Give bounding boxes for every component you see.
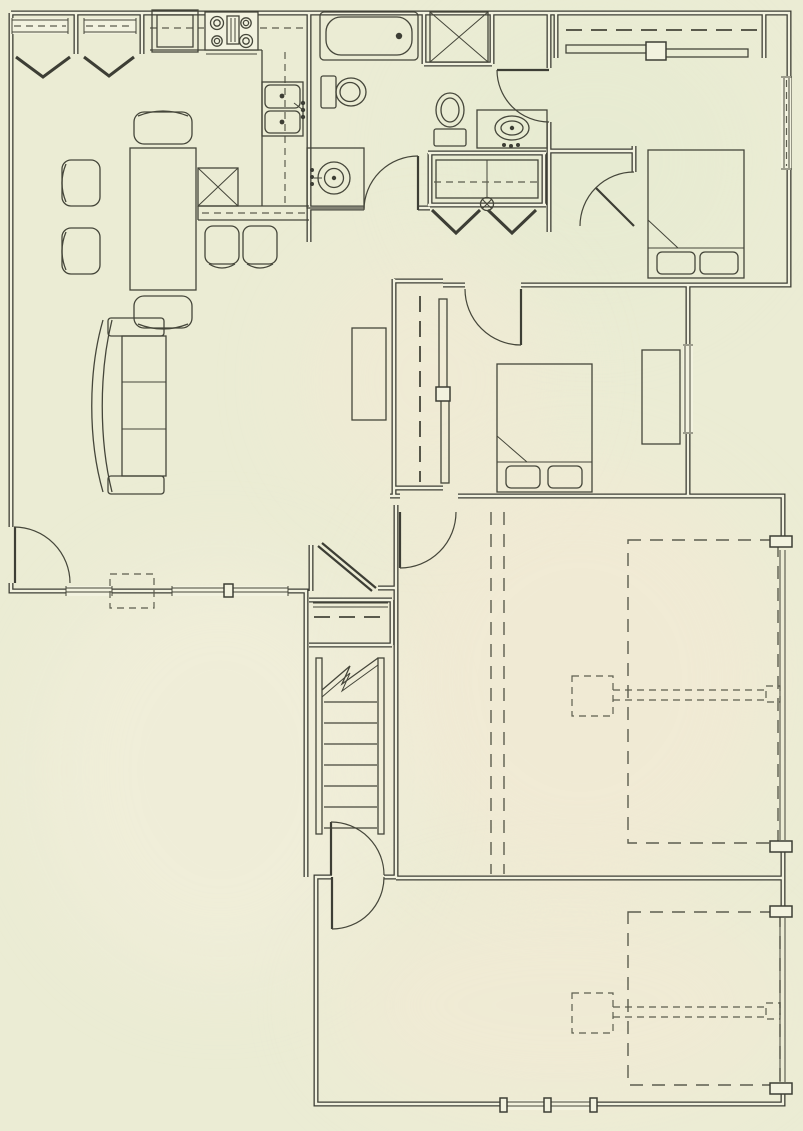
pillow	[700, 252, 738, 274]
dining-armchair	[62, 160, 100, 206]
doors-layer	[14, 70, 634, 929]
closet-door-track	[313, 603, 388, 607]
floor-plan-drawing	[0, 0, 803, 1131]
hall-angled-door	[318, 543, 376, 591]
pillow	[657, 252, 695, 274]
garage-group	[491, 512, 792, 1094]
sofa-arm	[108, 476, 164, 494]
window-bedroom1	[781, 76, 792, 170]
garage-door-opener	[572, 676, 613, 716]
opener-rail-end	[766, 1003, 780, 1019]
bath2-door	[497, 70, 549, 122]
casement-leaves	[16, 57, 70, 77]
dining-armchair	[62, 228, 100, 274]
casement-leaves	[84, 57, 134, 76]
stair-treads	[324, 702, 377, 828]
sofa-arm	[108, 318, 164, 336]
window-mullion	[544, 1098, 551, 1112]
dining-armchair	[134, 111, 192, 144]
windows-layer	[12, 18, 792, 1112]
stair-stringer	[316, 658, 322, 834]
floor-plan-sheet	[0, 0, 803, 1131]
bathroom2-group	[430, 12, 547, 211]
bath1-door	[364, 156, 418, 210]
bifold-doors	[488, 210, 536, 233]
counter-edge	[150, 50, 262, 206]
break-line	[322, 665, 378, 697]
window-bedroom2	[683, 344, 693, 434]
dining-table	[130, 148, 196, 290]
bedroom1-door	[580, 172, 634, 226]
bay-window	[84, 18, 136, 76]
bathroom1-group	[307, 12, 418, 208]
bar-stool	[205, 226, 239, 268]
curved-sofa	[92, 318, 166, 494]
media-console	[352, 328, 386, 420]
entry-door	[14, 527, 70, 583]
stair-stringer	[378, 658, 384, 834]
door-jamb	[770, 906, 792, 917]
range-stove	[205, 12, 258, 54]
opener-rail-dashed	[613, 1007, 768, 1017]
dresser	[642, 350, 680, 444]
dining-group	[62, 111, 196, 329]
window-mullion	[500, 1098, 507, 1112]
bedroom2-door	[465, 289, 521, 345]
sliding-closet-doors	[566, 42, 748, 60]
bed	[497, 364, 592, 492]
door-jamb	[770, 536, 792, 547]
door-jamb	[770, 841, 792, 852]
garage-door-panel	[780, 550, 785, 1082]
bedroom2-group	[420, 296, 680, 492]
sheet-fold	[648, 220, 678, 248]
window-mullion	[224, 584, 233, 597]
mudroom-door-lower	[332, 877, 384, 929]
kitchen-double-sink	[262, 82, 305, 136]
peninsula-counter	[198, 168, 309, 220]
shower-stall	[430, 12, 488, 62]
bay-window	[12, 18, 70, 77]
pillow	[506, 466, 540, 488]
refrigerator	[152, 10, 198, 52]
tub-drain	[396, 33, 402, 39]
stair-group	[313, 603, 388, 834]
vanity-round-sink	[307, 148, 364, 208]
opener-rail-dashed	[613, 690, 768, 700]
bar-stool	[243, 226, 277, 268]
vanity-sink	[477, 110, 547, 148]
sofa-seat	[122, 336, 166, 476]
bed	[648, 150, 744, 278]
ceiling-beam-dashed	[491, 512, 504, 874]
toilet	[434, 93, 466, 146]
garage-entry-door	[400, 512, 456, 568]
window-living	[172, 584, 288, 597]
sheet-fold	[497, 436, 527, 462]
bathtub	[320, 12, 418, 60]
bedroom1-group	[566, 30, 760, 278]
bifold-doors	[432, 210, 480, 233]
mudroom-door-upper	[331, 822, 384, 875]
dining-armchair	[134, 296, 192, 329]
living-room-group	[92, 318, 386, 494]
garage-door-opener	[572, 993, 613, 1033]
window-mullion	[590, 1098, 597, 1112]
overhead-door-dashed	[628, 912, 780, 1085]
toilet	[321, 76, 366, 108]
sliding-closet-doors	[436, 299, 450, 483]
window-garage	[500, 1098, 597, 1112]
pillow	[548, 466, 582, 488]
kitchen-group	[150, 10, 309, 268]
overhead-door-dashed	[628, 540, 778, 843]
window-living	[66, 586, 112, 596]
door-jamb	[770, 1083, 792, 1094]
